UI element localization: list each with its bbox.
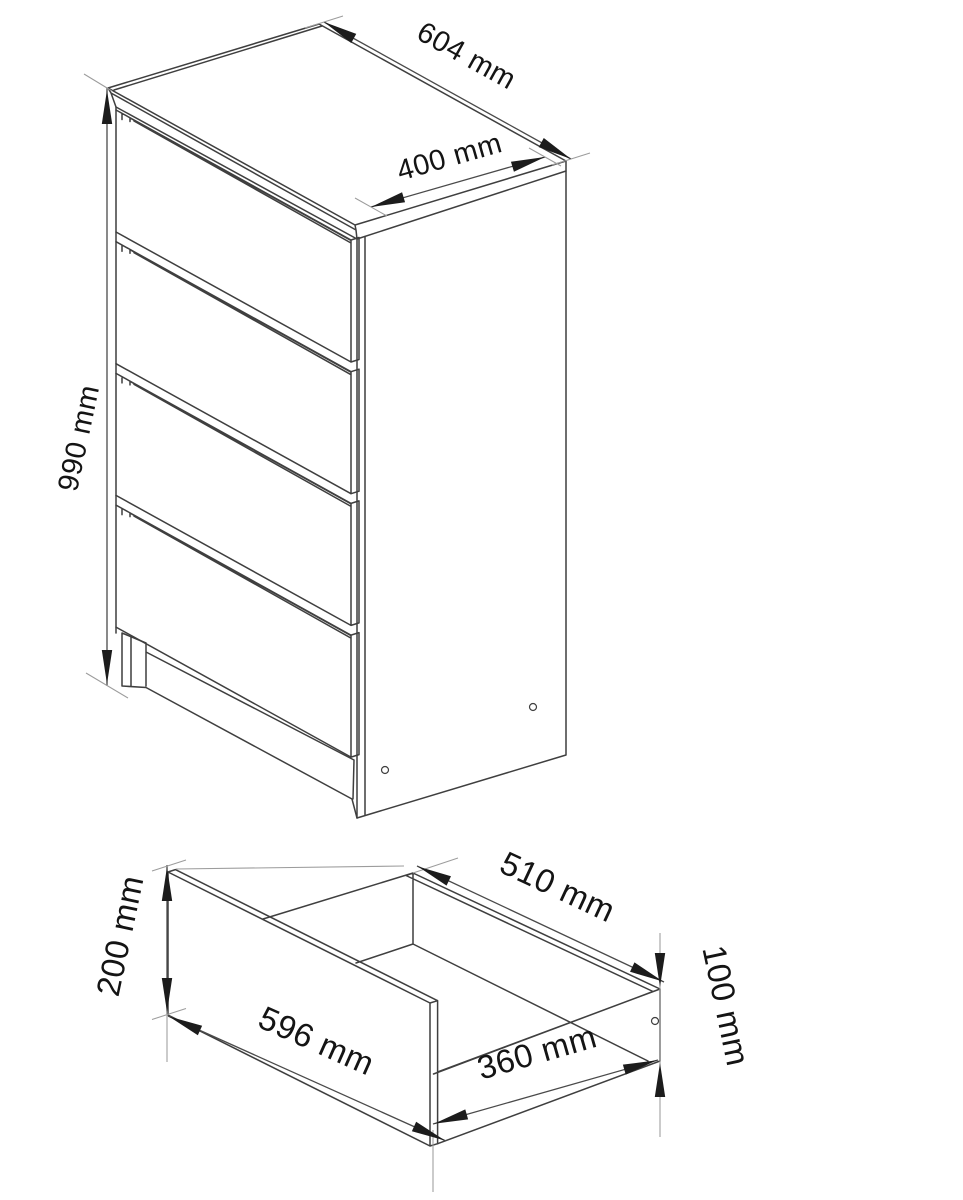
dimension-front-width-596: 596 mm: [168, 999, 446, 1192]
dimension-arrow: [434, 1109, 468, 1123]
technical-drawing-page: 990 mm 604 mm 400 mm 200 mm: [0, 0, 963, 1200]
drawer-side-hole: [652, 1018, 659, 1025]
cabinet-side-panel: [357, 171, 566, 818]
dimension-side-height-100: 100 mm: [660, 933, 757, 1137]
dim-label-990: 990 mm: [52, 382, 106, 494]
dimension-depth-510: 510 mm: [413, 844, 664, 982]
cam-hole-front: [382, 767, 389, 774]
dim-label-510: 510 mm: [495, 844, 621, 929]
dimension-arrowheads: [102, 22, 665, 1141]
dim-label-596: 596 mm: [253, 999, 380, 1083]
dimension-arrow: [169, 1017, 202, 1036]
cam-hole-back: [530, 704, 537, 711]
dim-label-360: 360 mm: [473, 1017, 601, 1086]
drawer-front-4: [116, 505, 359, 757]
dimension-arrow: [162, 978, 172, 1012]
dimension-bottom-360: 360 mm: [433, 1017, 658, 1124]
dimension-arrow: [371, 192, 405, 207]
drawer-front-panel: [168, 870, 438, 1146]
drawer-view: 200 mm 596 mm 510 mm 360 mm 100 mm: [89, 844, 757, 1192]
dimension-arrow: [102, 90, 112, 124]
drawer-front-2: [116, 242, 359, 494]
cabinet-view: 990 mm 604 mm 400 mm: [52, 16, 590, 818]
cabinet-plinth-and-foot: [122, 633, 357, 818]
dim-label-400: 400 mm: [393, 127, 505, 187]
dim-label-100: 100 mm: [695, 942, 757, 1069]
dimension-arrow: [102, 650, 112, 684]
dimension-front-height-200: 200 mm: [89, 860, 186, 1062]
furniture-dimension-drawing: 990 mm 604 mm 400 mm 200 mm: [0, 0, 963, 1200]
drawer-front-3: [116, 373, 359, 625]
drawer-front-1: [116, 110, 359, 362]
dimension-arrow: [412, 1122, 445, 1141]
dim-label-200: 200 mm: [89, 872, 151, 999]
dimension-arrow: [324, 22, 356, 43]
dimension-arrow: [655, 1063, 665, 1097]
dimension-arrow: [162, 867, 172, 901]
dimension-arrow: [623, 1060, 657, 1074]
construction-line: [176, 866, 404, 869]
